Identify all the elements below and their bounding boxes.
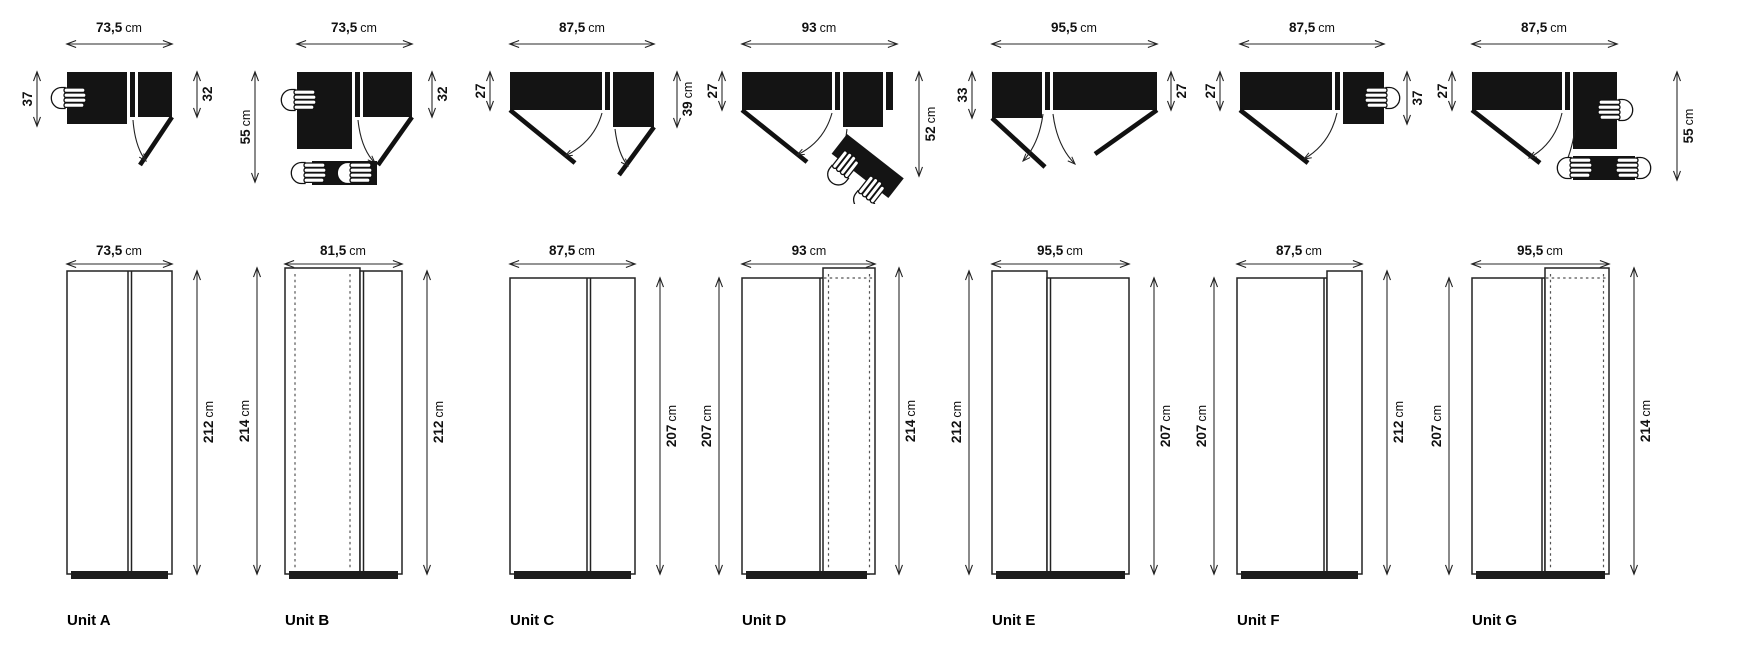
dimension-label: 33 bbox=[955, 87, 970, 103]
depth-dimension-left: 27 bbox=[705, 72, 722, 110]
width-dimension: 87,5cm bbox=[1240, 20, 1384, 44]
tall-module bbox=[823, 268, 875, 574]
open-door-right bbox=[1095, 110, 1157, 154]
dim-value: 32 bbox=[200, 86, 215, 101]
door-swing-arc-icon bbox=[1053, 114, 1075, 164]
wardrobe-front-left bbox=[1472, 278, 1545, 574]
door-swing-arc-icon bbox=[565, 113, 602, 156]
dimension-label: 87,5cm bbox=[549, 244, 595, 258]
dimension-label: 27 bbox=[473, 83, 488, 98]
dimension-label: 207cm bbox=[1194, 405, 1209, 447]
dim-value: 73,5 bbox=[96, 244, 123, 258]
dim-value: 27 bbox=[705, 83, 720, 98]
width-dimension: 93cm bbox=[742, 244, 875, 264]
dim-value: 52 bbox=[923, 126, 938, 141]
dimension-diagram: 73,5cm 37 32 73,5cm bbox=[0, 0, 1739, 629]
dim-value: 207 bbox=[1429, 425, 1444, 448]
height-dimension-right: 207cm bbox=[660, 278, 679, 574]
dim-value: 33 bbox=[955, 87, 970, 103]
depth-dimension-right: 37 bbox=[1407, 72, 1425, 124]
unit-label: Unit G bbox=[1427, 612, 1727, 629]
unit-label: Unit C bbox=[462, 612, 697, 629]
dimension-label: 207cm bbox=[699, 405, 714, 447]
dimension-label: 207cm bbox=[1429, 405, 1444, 447]
cabinet-body-right bbox=[613, 72, 654, 127]
open-door-left bbox=[742, 110, 807, 162]
dim-value: 87,5 bbox=[1521, 20, 1548, 35]
unit-column-d: 93cm 27 52cm bbox=[697, 14, 947, 629]
plan-view-b: 73,5cm 55cm 32 bbox=[227, 14, 462, 204]
dim-unit: cm bbox=[810, 244, 827, 258]
width-dimension: 73,5cm bbox=[297, 20, 412, 44]
unit-label: Unit F bbox=[1192, 612, 1427, 629]
dimension-label: 212cm bbox=[1391, 401, 1406, 443]
dim-unit: cm bbox=[349, 244, 366, 258]
dimension-label: 87,5cm bbox=[559, 20, 605, 35]
plan-view-d: 93cm 27 52cm bbox=[697, 14, 947, 204]
cabinet-body-left bbox=[1240, 72, 1332, 110]
dim-unit: cm bbox=[432, 401, 446, 418]
dimension-label: 93cm bbox=[802, 20, 837, 35]
dim-value: 73,5 bbox=[331, 20, 358, 35]
door-swing-arc-icon bbox=[1529, 113, 1562, 158]
depth-dimension-right: 39cm bbox=[677, 72, 695, 127]
dim-value: 95,5 bbox=[1037, 244, 1064, 258]
dim-value: 207 bbox=[699, 425, 714, 448]
center-divider bbox=[605, 72, 610, 110]
dimension-label: 37 bbox=[20, 91, 35, 106]
wardrobe-front-right bbox=[360, 271, 402, 574]
dimension-label: 212cm bbox=[431, 401, 446, 443]
dim-value: 214 bbox=[237, 419, 252, 442]
dim-value: 212 bbox=[949, 421, 964, 444]
width-dimension: 87,5cm bbox=[510, 244, 635, 264]
wardrobe-front-right bbox=[1047, 278, 1129, 574]
elevation-view-e: 95,5cm 212cm 207cm bbox=[947, 244, 1192, 596]
height-dimension-right: 212cm bbox=[197, 271, 216, 574]
dimension-label: 214cm bbox=[237, 400, 252, 442]
wardrobe-front bbox=[510, 278, 635, 574]
width-dimension: 95,5cm bbox=[992, 20, 1157, 44]
plan-view-g: 87,5cm 27 55cm bbox=[1427, 14, 1727, 204]
unit-column-a: 73,5cm 37 32 73,5cm bbox=[12, 14, 227, 629]
wardrobe-front bbox=[67, 271, 172, 574]
dimension-label: 27 bbox=[1435, 83, 1450, 98]
side-panel bbox=[886, 72, 893, 110]
center-divider bbox=[1565, 72, 1570, 110]
dim-unit: cm bbox=[578, 244, 595, 258]
dim-unit: cm bbox=[1546, 244, 1563, 258]
dim-value: 93 bbox=[802, 20, 818, 35]
dimension-label: 95,5cm bbox=[1517, 244, 1563, 258]
dim-unit: cm bbox=[700, 405, 714, 422]
dim-value: 37 bbox=[20, 91, 35, 106]
dim-value: 87,5 bbox=[549, 244, 576, 258]
unit-label: Unit A bbox=[12, 612, 227, 629]
unit-column-b: 73,5cm 55cm 32 81,5cm bbox=[227, 14, 462, 629]
door-swing-arc-icon bbox=[797, 113, 832, 155]
dim-unit: cm bbox=[239, 110, 253, 127]
center-divider bbox=[130, 72, 135, 117]
base-plinth bbox=[1241, 571, 1358, 579]
dim-unit: cm bbox=[1195, 405, 1209, 422]
dimension-label: 95,5cm bbox=[1037, 244, 1083, 258]
hand-icon bbox=[1557, 158, 1592, 179]
dim-value: 212 bbox=[201, 421, 216, 444]
unit-column-e: 95,5cm 33 27 95,5cm bbox=[947, 14, 1192, 629]
height-dimension-left: 207cm bbox=[1429, 278, 1449, 574]
dimension-label: 212cm bbox=[949, 401, 964, 443]
cabinet-body-left bbox=[742, 72, 832, 110]
open-door-left bbox=[1240, 110, 1308, 163]
dim-unit: cm bbox=[820, 21, 837, 35]
center-divider bbox=[1335, 72, 1340, 110]
dim-unit: cm bbox=[1392, 401, 1406, 418]
depth-dimension-left: 27 bbox=[1435, 72, 1452, 110]
base-plinth bbox=[746, 571, 867, 579]
unit-column-g: 87,5cm 27 55cm 95,5cm bbox=[1427, 14, 1727, 629]
base-plinth bbox=[71, 571, 168, 579]
open-door bbox=[378, 117, 412, 165]
dim-value: 212 bbox=[431, 421, 446, 444]
door-swing-arc-icon bbox=[1304, 113, 1337, 159]
open-door-left bbox=[1472, 110, 1540, 163]
dim-value: 37 bbox=[1410, 90, 1425, 105]
dim-unit: cm bbox=[1639, 400, 1653, 417]
hand-icon bbox=[281, 90, 316, 111]
dim-value: 207 bbox=[1158, 425, 1173, 448]
unit-label: Unit B bbox=[227, 612, 462, 629]
dimension-label: 73,5cm bbox=[96, 244, 142, 258]
width-dimension: 87,5cm bbox=[510, 20, 654, 44]
dimension-label: 27 bbox=[1203, 83, 1218, 98]
height-dimension-left: 207cm bbox=[699, 278, 719, 574]
dimension-label: 87,5cm bbox=[1521, 20, 1567, 35]
open-door bbox=[140, 117, 172, 165]
height-dimension-right: 212cm bbox=[1387, 271, 1406, 574]
elevation-view-g: 95,5cm 207cm 214cm bbox=[1427, 244, 1727, 596]
dim-unit: cm bbox=[924, 107, 938, 124]
height-dimension-left: 212cm bbox=[949, 271, 969, 574]
dimension-label: 212cm bbox=[201, 401, 216, 443]
elevation-view-f: 87,5cm 207cm 212cm bbox=[1192, 244, 1427, 596]
cabinet-body-right-deep bbox=[843, 110, 883, 127]
depth-dimension-left: 27 bbox=[473, 72, 490, 110]
dim-unit: cm bbox=[360, 21, 377, 35]
open-door-right bbox=[619, 127, 654, 175]
cabinet-body-left bbox=[1472, 72, 1562, 110]
height-dimension-left: 214cm bbox=[237, 268, 257, 574]
center-divider bbox=[1045, 72, 1050, 110]
door-swing-arc-icon bbox=[615, 129, 628, 166]
dimension-label: 55cm bbox=[238, 110, 253, 145]
wardrobe-front-left bbox=[1237, 278, 1327, 574]
height-dimension-right: 214cm bbox=[899, 268, 918, 574]
base-plinth bbox=[289, 571, 398, 579]
width-dimension: 73,5cm bbox=[67, 244, 172, 264]
height-dimension-left: 207cm bbox=[1194, 278, 1214, 574]
cabinet-body-left bbox=[992, 72, 1042, 118]
dim-unit: cm bbox=[1305, 244, 1322, 258]
dim-value: 87,5 bbox=[1289, 20, 1316, 35]
hand-icon bbox=[1365, 88, 1400, 109]
cabinet-body-left bbox=[510, 72, 602, 110]
dim-value: 39 bbox=[680, 101, 695, 116]
dim-value: 207 bbox=[664, 425, 679, 448]
wardrobe-front-left bbox=[992, 271, 1047, 574]
dim-unit: cm bbox=[1080, 21, 1097, 35]
dim-unit: cm bbox=[950, 401, 964, 418]
dimension-label: 52cm bbox=[923, 107, 938, 142]
dim-value: 87,5 bbox=[559, 20, 586, 35]
unit-label: Unit E bbox=[947, 612, 1192, 629]
dim-value: 27 bbox=[1174, 83, 1189, 98]
dim-unit: cm bbox=[588, 21, 605, 35]
width-dimension: 81,5cm bbox=[285, 244, 402, 264]
dim-unit: cm bbox=[238, 400, 252, 417]
wardrobe-front-right bbox=[1327, 271, 1362, 574]
depth-dimension-right: 32 bbox=[197, 72, 215, 117]
unit-column-c: 87,5cm 27 39cm 87,5cm bbox=[462, 14, 697, 629]
dim-unit: cm bbox=[125, 244, 142, 258]
hand-icon bbox=[1598, 100, 1633, 121]
depth-dimension-right: 32 bbox=[432, 72, 450, 117]
dim-unit: cm bbox=[125, 21, 142, 35]
tall-module bbox=[1545, 268, 1609, 574]
elevation-view-c: 87,5cm 207cm bbox=[462, 244, 697, 596]
width-dimension: 73,5cm bbox=[67, 20, 172, 44]
dimension-label: 27 bbox=[705, 83, 720, 98]
hand-icon bbox=[51, 88, 86, 109]
dim-unit: cm bbox=[665, 405, 679, 422]
center-divider bbox=[835, 72, 840, 110]
depth-dimension-right: 55cm bbox=[1677, 72, 1696, 180]
pulled-drawer-angled bbox=[815, 134, 904, 204]
dim-value: 214 bbox=[903, 419, 918, 442]
dimension-label: 87,5cm bbox=[1289, 20, 1335, 35]
dimension-label: 207cm bbox=[1158, 405, 1173, 447]
dimension-label: 55cm bbox=[1681, 109, 1696, 144]
depth-dimension-left: 27 bbox=[1203, 72, 1220, 110]
cabinet-body-right bbox=[1053, 72, 1157, 110]
center-divider bbox=[355, 72, 360, 117]
hand-icon bbox=[337, 163, 372, 184]
dimension-label: 73,5cm bbox=[96, 20, 142, 35]
dim-value: 87,5 bbox=[1276, 244, 1303, 258]
dim-value: 93 bbox=[792, 244, 808, 258]
dim-value: 27 bbox=[1435, 83, 1450, 98]
height-dimension-right: 214cm bbox=[1634, 268, 1653, 574]
dimension-label: 87,5cm bbox=[1276, 244, 1322, 258]
dim-value: 73,5 bbox=[96, 20, 123, 35]
cabinet-body-right bbox=[363, 72, 412, 117]
dim-value: 95,5 bbox=[1051, 20, 1078, 35]
plan-view-c: 87,5cm 27 39cm bbox=[462, 14, 697, 204]
dimension-label: 81,5cm bbox=[320, 244, 366, 258]
door-swing-arc-icon bbox=[358, 120, 375, 163]
dim-value: 55 bbox=[238, 129, 253, 145]
base-plinth bbox=[1476, 571, 1605, 579]
dimension-label: 27 bbox=[1174, 83, 1189, 98]
dimension-label: 32 bbox=[200, 86, 215, 101]
dim-value: 95,5 bbox=[1517, 244, 1544, 258]
base-plinth bbox=[996, 571, 1125, 579]
dim-unit: cm bbox=[1550, 21, 1567, 35]
dim-value: 27 bbox=[473, 83, 488, 98]
depth-dimension-right: 27 bbox=[1171, 72, 1189, 110]
dim-unit: cm bbox=[1066, 244, 1083, 258]
width-dimension: 93cm bbox=[742, 20, 897, 44]
depth-dimension-right: 52cm bbox=[919, 72, 938, 176]
dim-unit: cm bbox=[681, 82, 695, 99]
dimension-label: 214cm bbox=[1638, 400, 1653, 442]
depth-dimension-left: 33 bbox=[955, 72, 972, 118]
cabinet-body-right bbox=[138, 72, 172, 117]
dimension-label: 73,5cm bbox=[331, 20, 377, 35]
dimension-label: 95,5cm bbox=[1051, 20, 1097, 35]
width-dimension: 95,5cm bbox=[992, 244, 1129, 264]
elevation-view-d: 93cm 207cm 214cm bbox=[697, 244, 947, 596]
dim-value: 32 bbox=[435, 86, 450, 101]
elevation-view-b: 81,5cm 214cm 212cm bbox=[227, 244, 462, 596]
unit-label: Unit D bbox=[697, 612, 947, 629]
base-plinth bbox=[514, 571, 631, 579]
height-dimension-right: 207cm bbox=[1154, 278, 1173, 574]
dimension-label: 32 bbox=[435, 86, 450, 101]
dimension-label: 207cm bbox=[664, 405, 679, 447]
wardrobe-front-left bbox=[285, 268, 360, 574]
dimension-label: 39cm bbox=[680, 82, 695, 117]
open-door-left bbox=[992, 118, 1045, 167]
width-dimension: 87,5cm bbox=[1472, 20, 1617, 44]
plan-view-e: 95,5cm 33 27 bbox=[947, 14, 1192, 204]
open-door-left bbox=[510, 110, 575, 163]
dim-value: 207 bbox=[1194, 425, 1209, 448]
dim-unit: cm bbox=[904, 400, 918, 417]
dim-unit: cm bbox=[202, 401, 216, 418]
hand-icon bbox=[1616, 158, 1651, 179]
dim-unit: cm bbox=[1682, 109, 1696, 126]
dim-unit: cm bbox=[1159, 405, 1173, 422]
dimension-label: 214cm bbox=[903, 400, 918, 442]
dimension-label: 93cm bbox=[792, 244, 827, 258]
elevation-view-a: 73,5cm 212cm bbox=[12, 244, 227, 596]
height-dimension-right: 212cm bbox=[427, 271, 446, 574]
dim-unit: cm bbox=[1430, 405, 1444, 422]
depth-dimension-left: 55cm bbox=[238, 72, 255, 182]
dim-value: 27 bbox=[1203, 83, 1218, 98]
dimension-label: 37 bbox=[1410, 90, 1425, 105]
depth-dimension-left: 37 bbox=[20, 72, 37, 126]
width-dimension: 87,5cm bbox=[1237, 244, 1362, 264]
width-dimension: 95,5cm bbox=[1472, 244, 1609, 264]
plan-view-a: 73,5cm 37 32 bbox=[12, 14, 227, 204]
plan-view-f: 87,5cm 27 37 bbox=[1192, 14, 1427, 204]
dim-value: 81,5 bbox=[320, 244, 347, 258]
dim-value: 212 bbox=[1391, 421, 1406, 444]
cabinet-body-left bbox=[297, 72, 352, 149]
dim-unit: cm bbox=[1318, 21, 1335, 35]
hand-icon bbox=[291, 163, 326, 184]
dim-value: 214 bbox=[1638, 419, 1653, 442]
unit-column-f: 87,5cm 27 37 87,5cm bbox=[1192, 14, 1427, 629]
dim-value: 55 bbox=[1681, 128, 1696, 144]
cabinet-body-right bbox=[843, 72, 883, 110]
